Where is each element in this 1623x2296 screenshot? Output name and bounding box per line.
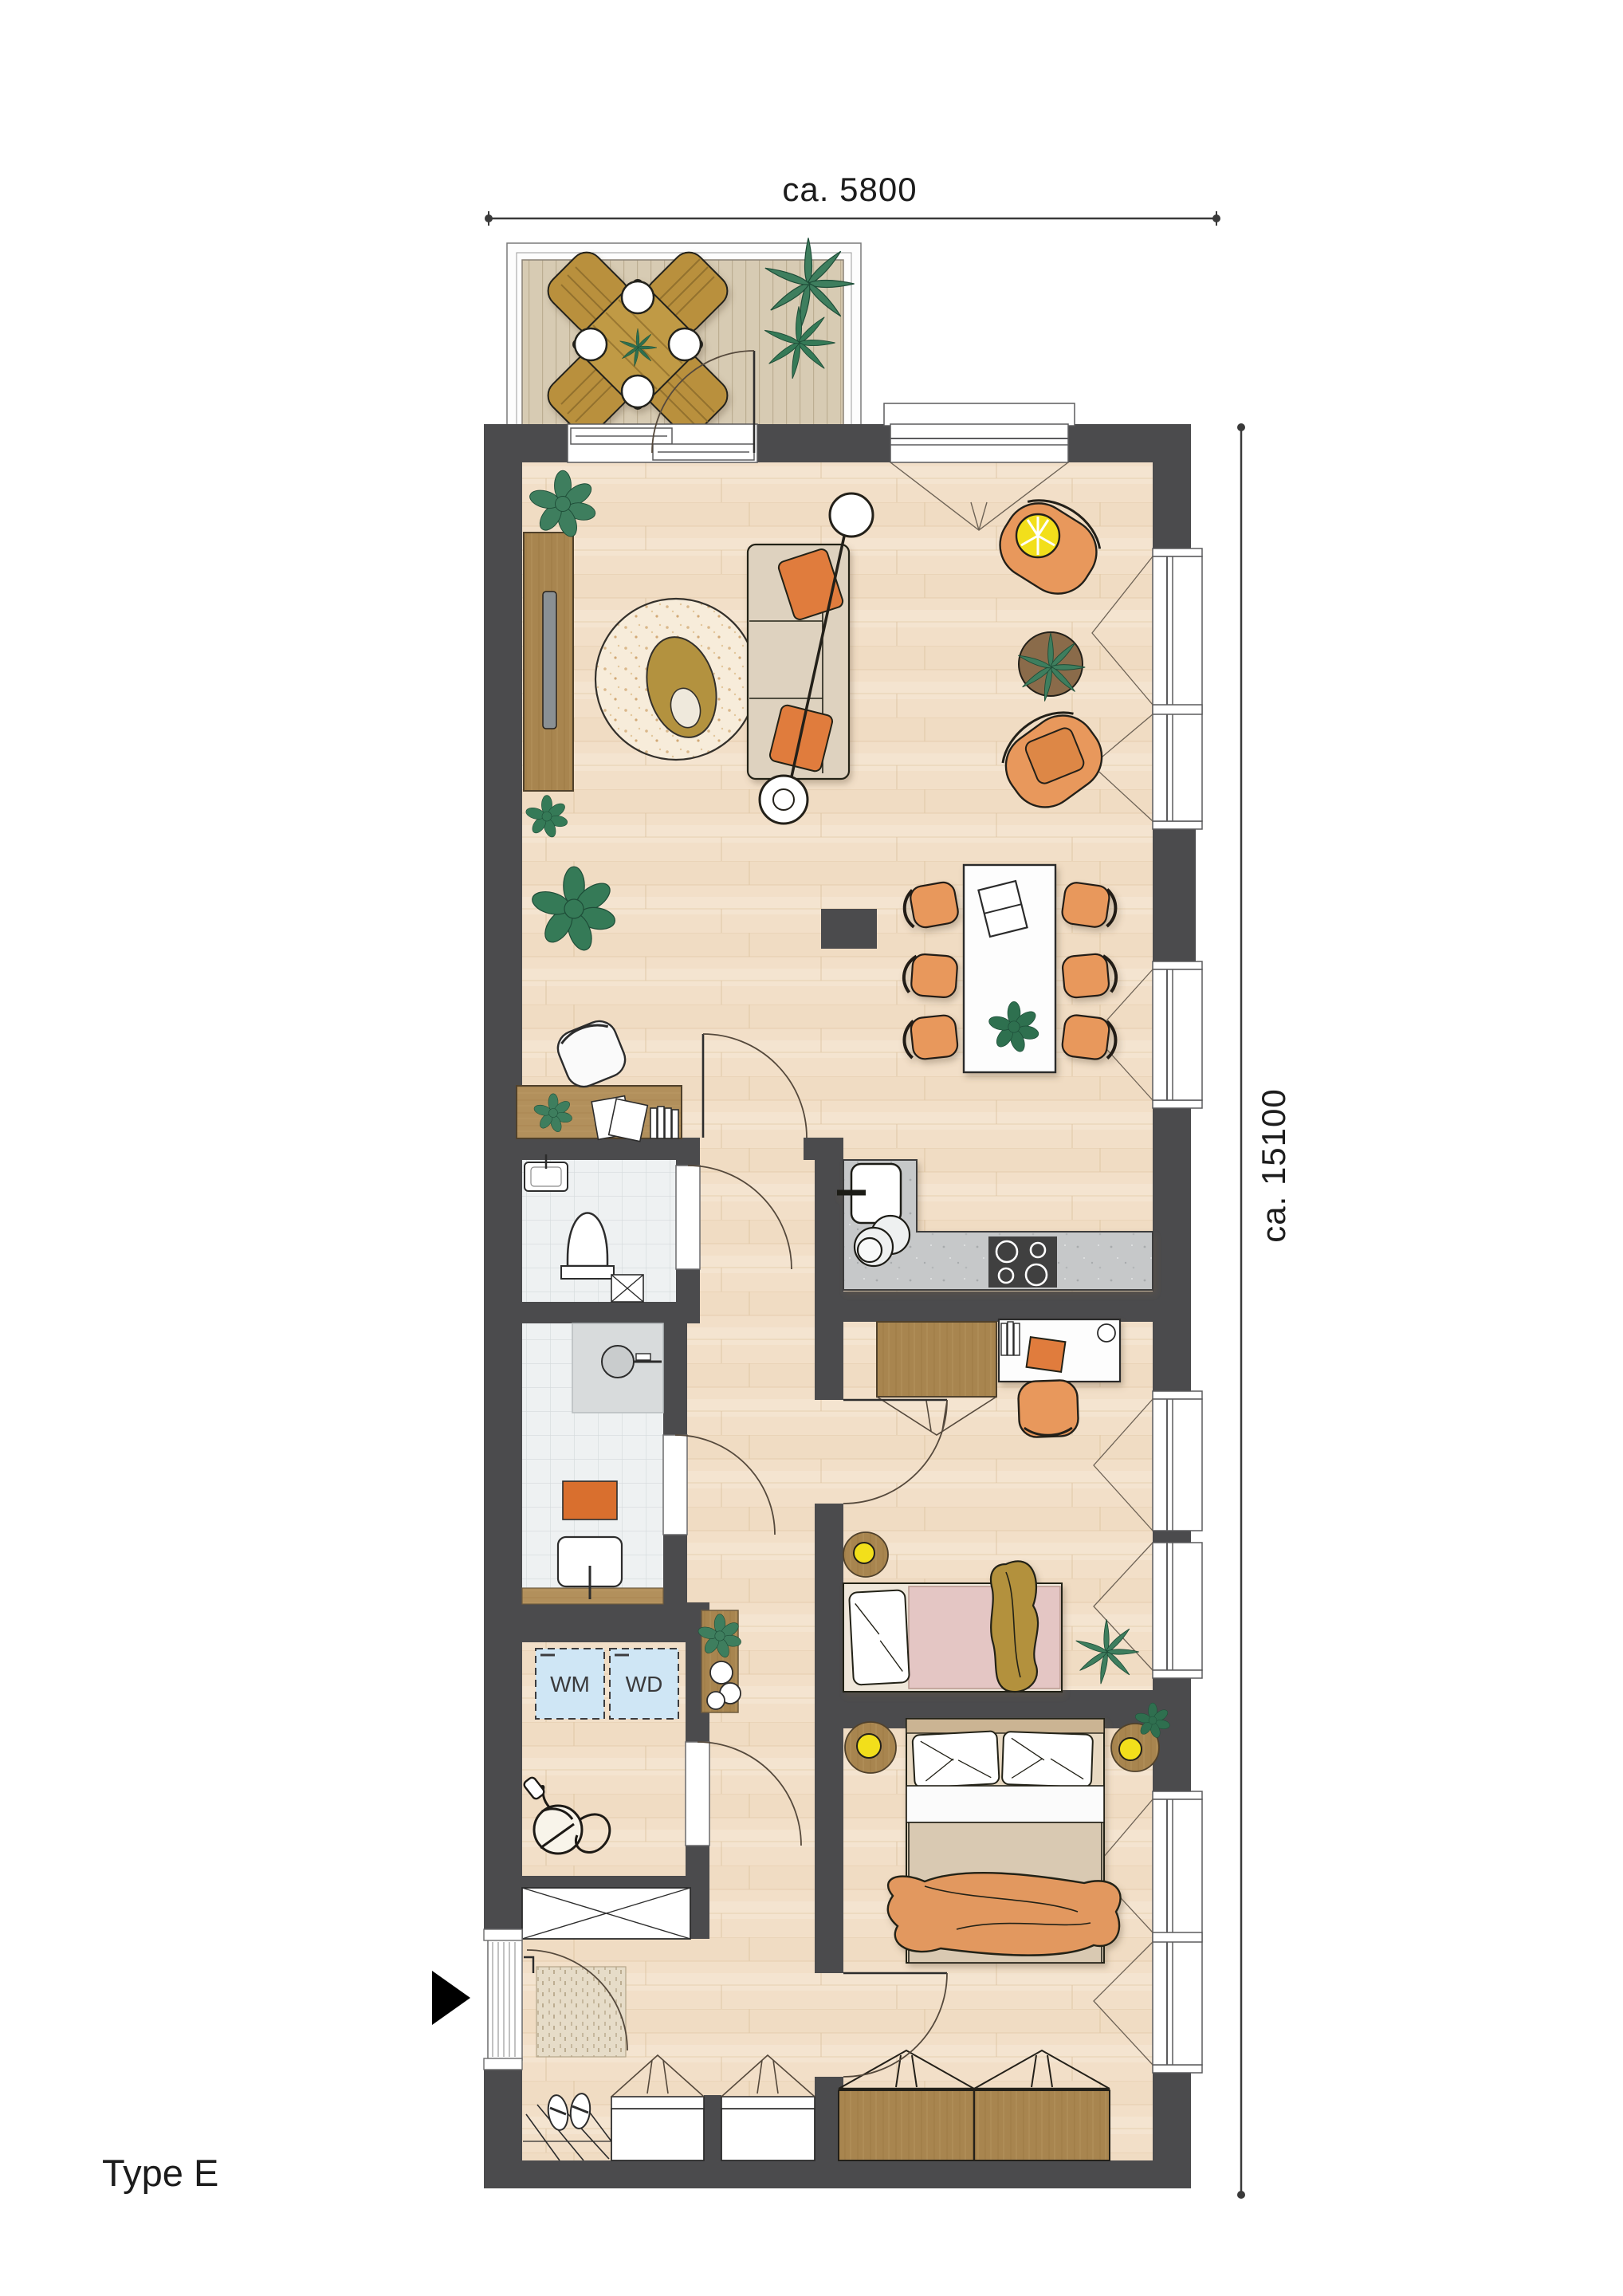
dimension-width: ca. 5800 (485, 171, 1220, 226)
bath-counter (522, 1588, 663, 1604)
desk-books (1001, 1322, 1020, 1355)
bath-mat (563, 1481, 617, 1520)
floorplan-page: WM WD (0, 0, 1623, 2296)
rug (595, 599, 756, 760)
dining-set (901, 865, 1118, 1072)
entrance-arrow-icon (432, 1971, 470, 2025)
tv-sideboard (524, 533, 573, 791)
plan-type-label: Type E (102, 2152, 218, 2194)
orange-blanket (888, 1873, 1121, 1955)
balcony-sliding-door (568, 424, 757, 462)
lamp-icon (857, 1734, 881, 1758)
column (821, 909, 877, 949)
pillow (912, 1731, 999, 1787)
dryer: WD (610, 1649, 678, 1719)
paper (609, 1099, 648, 1141)
sheet-band (906, 1786, 1104, 1822)
headboard (906, 1719, 1104, 1733)
installation-shaft (611, 1275, 643, 1302)
bedroom2-desk (999, 1319, 1120, 1382)
bedroom2-wardrobe (877, 1322, 996, 1397)
cup (1098, 1324, 1115, 1342)
bedroom2-chair (1018, 1380, 1079, 1438)
tv (543, 592, 556, 729)
hall-closet (522, 1888, 690, 1939)
dimension-height: ca. 15100 (1237, 423, 1292, 2199)
washer-label: WM (550, 1672, 590, 1696)
width-dimension-label: ca. 5800 (782, 171, 917, 208)
pillow (849, 1590, 910, 1685)
doormat (536, 1967, 626, 2057)
washing-machine: WM (536, 1649, 604, 1719)
lamp-icon (854, 1543, 874, 1563)
floorplan-drawing: WM WD (0, 0, 1623, 2296)
console-table (697, 1610, 741, 1712)
laptop (1027, 1337, 1066, 1372)
height-dimension-label: ca. 15100 (1255, 1088, 1292, 1243)
master-bed (888, 1719, 1121, 1963)
pillow (1002, 1732, 1093, 1787)
cooktop (988, 1236, 1057, 1288)
books (650, 1107, 678, 1138)
lemon-pillow (1016, 514, 1059, 557)
dryer-label: WD (626, 1672, 663, 1696)
lamp-icon (1119, 1738, 1142, 1760)
